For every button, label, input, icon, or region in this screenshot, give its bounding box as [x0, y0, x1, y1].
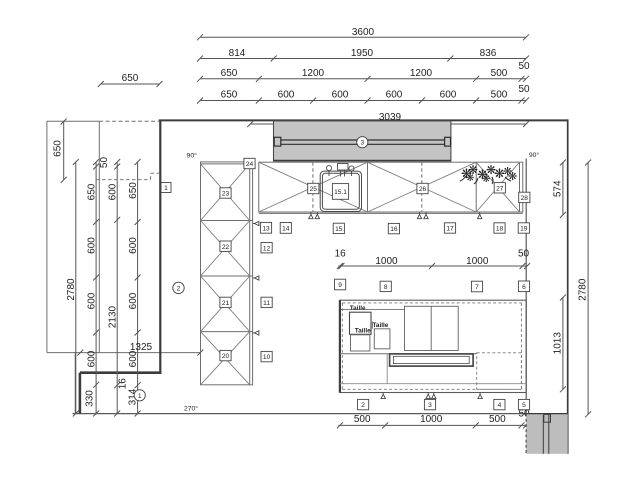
svg-text:Taille: Taille — [373, 322, 389, 329]
svg-text:8: 8 — [384, 284, 388, 291]
svg-text:2780: 2780 — [577, 278, 588, 301]
svg-text:600: 600 — [128, 237, 139, 254]
svg-text:600: 600 — [86, 292, 97, 309]
svg-text:50: 50 — [518, 248, 530, 259]
svg-text:1200: 1200 — [302, 68, 325, 79]
svg-text:600: 600 — [440, 90, 457, 101]
svg-text:11: 11 — [263, 300, 270, 307]
svg-text:50: 50 — [518, 61, 530, 72]
svg-text:90°: 90° — [187, 152, 198, 160]
svg-text:270°: 270° — [184, 405, 198, 413]
svg-text:4: 4 — [498, 402, 502, 409]
svg-text:13: 13 — [262, 225, 270, 232]
svg-text:600: 600 — [128, 292, 139, 309]
svg-text:27: 27 — [496, 185, 504, 192]
svg-text:17: 17 — [446, 226, 454, 233]
svg-text:16: 16 — [390, 226, 398, 233]
svg-text:500: 500 — [489, 414, 506, 425]
svg-text:600: 600 — [332, 90, 349, 101]
svg-text:1000: 1000 — [420, 414, 443, 425]
svg-text:1325: 1325 — [130, 342, 153, 353]
svg-text:24: 24 — [246, 161, 254, 168]
svg-text:650: 650 — [86, 183, 97, 200]
svg-text:16: 16 — [118, 378, 129, 390]
svg-text:21: 21 — [222, 300, 230, 307]
svg-text:23: 23 — [222, 191, 230, 198]
svg-text:2: 2 — [361, 402, 365, 409]
svg-text:1000: 1000 — [375, 256, 398, 267]
svg-text:2780: 2780 — [66, 278, 77, 301]
svg-text:25: 25 — [310, 186, 318, 193]
svg-text:650: 650 — [122, 73, 139, 84]
svg-text:500: 500 — [491, 90, 508, 101]
svg-text:26: 26 — [419, 186, 427, 193]
svg-text:500: 500 — [354, 414, 371, 425]
svg-text:90°: 90° — [529, 151, 540, 159]
svg-text:3600: 3600 — [352, 27, 375, 38]
svg-text:574: 574 — [552, 180, 563, 197]
svg-text:1950: 1950 — [351, 48, 374, 59]
svg-text:500: 500 — [491, 68, 508, 79]
svg-text:3: 3 — [360, 140, 364, 147]
svg-text:Taille: Taille — [350, 305, 366, 312]
svg-text:600: 600 — [86, 350, 97, 367]
svg-text:650: 650 — [53, 140, 64, 157]
svg-text:2: 2 — [177, 285, 181, 292]
svg-text:3: 3 — [428, 402, 432, 409]
svg-text:14: 14 — [282, 226, 290, 233]
svg-text:600: 600 — [108, 183, 119, 200]
svg-text:❋: ❋ — [508, 171, 517, 183]
svg-text:18: 18 — [496, 226, 504, 233]
svg-text:1: 1 — [138, 393, 142, 400]
svg-text:1000: 1000 — [466, 256, 489, 267]
svg-text:50: 50 — [518, 84, 530, 95]
svg-text:836: 836 — [480, 48, 497, 59]
svg-text:19: 19 — [520, 226, 528, 233]
svg-text:15.1: 15.1 — [334, 189, 347, 196]
svg-text:12: 12 — [263, 245, 271, 252]
svg-text:6: 6 — [522, 284, 526, 291]
svg-text:600: 600 — [278, 90, 295, 101]
svg-text:650: 650 — [221, 90, 238, 101]
svg-text:Taille: Taille — [355, 327, 371, 334]
svg-text:2130: 2130 — [108, 305, 119, 328]
svg-text:650: 650 — [221, 68, 238, 79]
svg-text:9: 9 — [338, 282, 342, 289]
svg-text:1: 1 — [164, 185, 168, 192]
svg-text:600: 600 — [86, 237, 97, 254]
svg-text:1200: 1200 — [410, 68, 433, 79]
svg-text:22: 22 — [222, 244, 230, 251]
svg-text:50: 50 — [99, 157, 110, 169]
svg-text:16: 16 — [335, 248, 347, 259]
svg-text:7: 7 — [475, 284, 479, 291]
svg-text:650: 650 — [128, 182, 139, 199]
svg-text:1013: 1013 — [552, 332, 563, 355]
svg-text:20: 20 — [222, 353, 230, 360]
svg-text:15: 15 — [335, 226, 343, 233]
svg-text:3039: 3039 — [379, 112, 402, 123]
svg-text:28: 28 — [521, 195, 529, 202]
svg-text:814: 814 — [229, 48, 246, 59]
svg-text:10: 10 — [263, 354, 271, 361]
svg-text:600: 600 — [386, 90, 403, 101]
svg-text:330: 330 — [85, 390, 96, 407]
